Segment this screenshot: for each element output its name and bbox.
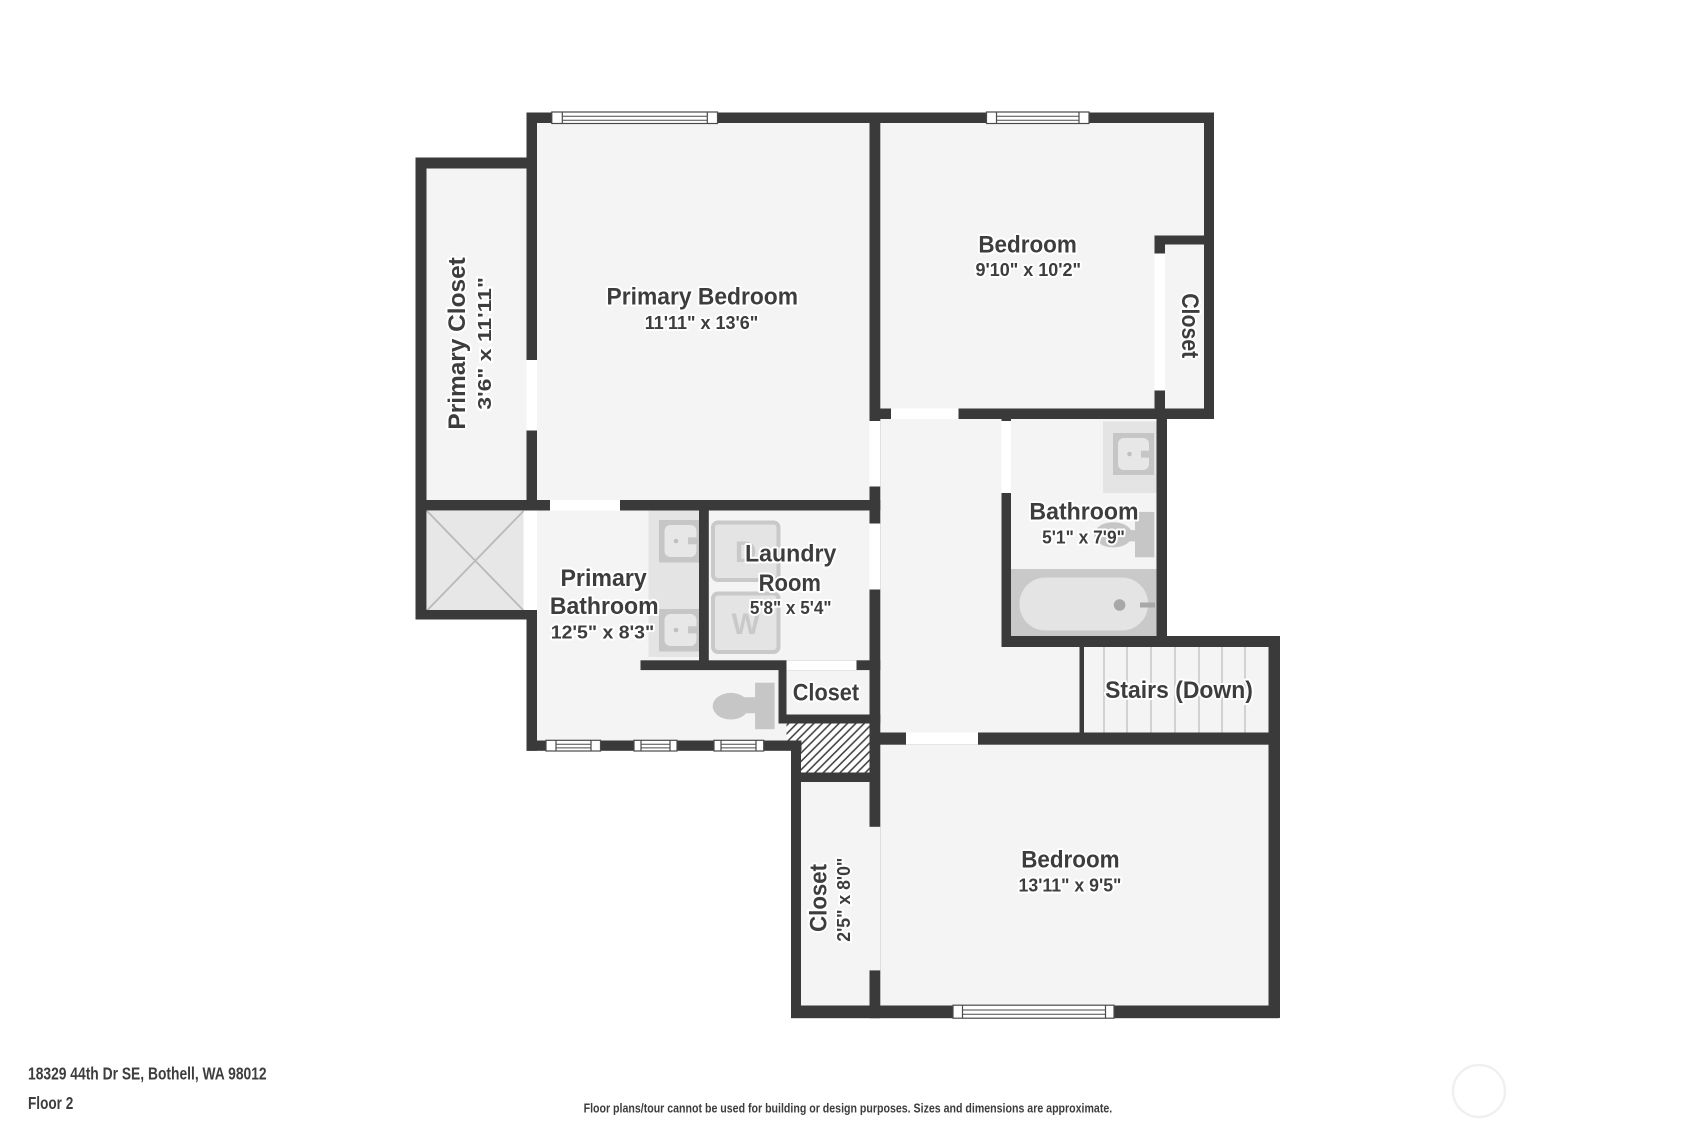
svg-text:11'11" x 13'6": 11'11" x 13'6" (645, 313, 759, 333)
svg-text:Bedroom: Bedroom (1021, 847, 1119, 874)
svg-text:Closet: Closet (793, 680, 859, 707)
svg-text:Primary: Primary (561, 565, 648, 592)
svg-text:Bathroom: Bathroom (550, 593, 659, 620)
svg-text:Laundry: Laundry (745, 541, 837, 568)
svg-text:2'5" x 8'0": 2'5" x 8'0" (834, 858, 854, 942)
svg-text:18329 44th Dr SE, Bothell, WA: 18329 44th Dr SE, Bothell, WA 98012 (28, 1064, 267, 1084)
svg-text:5'1" x 7'9": 5'1" x 7'9" (1042, 528, 1125, 548)
svg-text:5'8" x 5'4": 5'8" x 5'4" (750, 598, 832, 618)
svg-text:12'5" x 8'3": 12'5" x 8'3" (551, 623, 655, 643)
svg-text:Floor 2: Floor 2 (28, 1093, 74, 1113)
svg-text:13'11" x 9'5": 13'11" x 9'5" (1019, 876, 1122, 896)
svg-text:Closet: Closet (1176, 293, 1203, 358)
svg-text:Primary Bedroom: Primary Bedroom (607, 284, 799, 311)
svg-text:9'10" x 10'2": 9'10" x 10'2" (976, 260, 1082, 280)
svg-text:Floor plans/tour cannot be use: Floor plans/tour cannot be used for buil… (584, 1101, 1113, 1116)
svg-text:Stairs (Down): Stairs (Down) (1105, 677, 1253, 704)
svg-text:Bathroom: Bathroom (1029, 499, 1138, 526)
svg-text:Room: Room (759, 570, 821, 597)
svg-text:Closet: Closet (805, 864, 832, 932)
svg-text:3'6" x 11'11": 3'6" x 11'11" (475, 277, 495, 410)
svg-text:Bedroom: Bedroom (978, 231, 1077, 258)
svg-text:Primary Closet: Primary Closet (444, 257, 471, 429)
